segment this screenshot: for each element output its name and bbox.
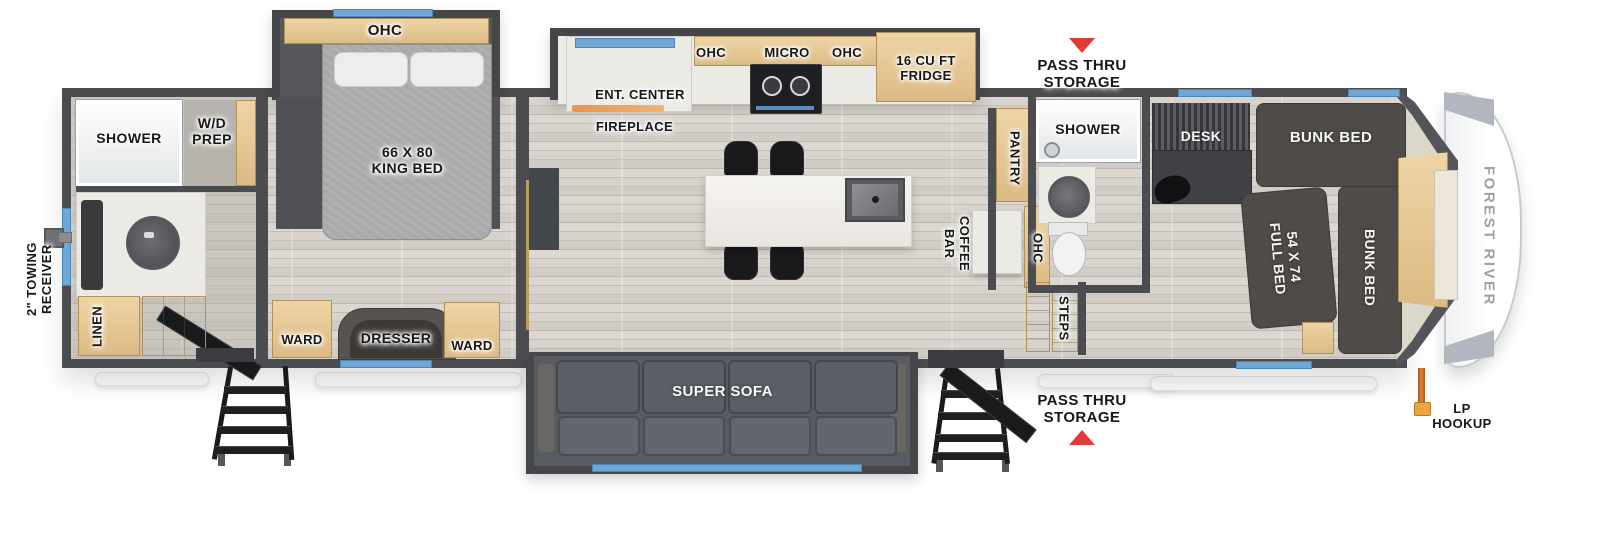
steps-right-foot-a xyxy=(936,458,943,472)
front-wardrobe-door xyxy=(1434,170,1458,300)
wall-bath-bedroom xyxy=(256,97,268,359)
sofa-seat-cushion-3 xyxy=(729,416,811,456)
mid-shower-head xyxy=(1044,142,1060,158)
desk-label: DESK xyxy=(1152,126,1250,146)
ward-right-label: WARD xyxy=(442,336,502,356)
steps-right-tread-4 xyxy=(933,452,1009,460)
steps-left-tread-4 xyxy=(215,446,292,454)
vanity-faucet xyxy=(144,232,154,238)
king-pillow-right xyxy=(410,52,484,87)
bumper-left-2 xyxy=(315,372,522,387)
sofa-back-cushion-1 xyxy=(556,360,640,414)
galley-ohc-label: OHC xyxy=(1025,216,1049,280)
island-faucet xyxy=(872,196,879,203)
sofa-seat-cushion-4 xyxy=(815,416,897,456)
bath-lower-cabinets xyxy=(142,296,206,356)
bunk-bed-right-label: BUNK BED xyxy=(1352,198,1388,338)
window-bunk-bottom xyxy=(1236,361,1312,369)
sofa-seat-cushion-2 xyxy=(643,416,725,456)
steps-left-foot-a xyxy=(218,452,225,466)
bumper-left-1 xyxy=(95,372,209,386)
wall-kitchen-pantry xyxy=(988,108,996,290)
bedroom-closet xyxy=(529,168,559,250)
fireplace-label: FIREPLACE xyxy=(572,118,697,136)
vanity-sink xyxy=(126,216,180,270)
window-bunk-top-2 xyxy=(1348,89,1400,97)
bunk-bed-top-label: BUNK BED xyxy=(1260,128,1402,148)
rv-floorplan: FOREST RIVER OHC 66 X 80 KING BED ENT. C… xyxy=(0,0,1600,543)
king-pillow-left xyxy=(334,52,408,87)
pass-thru-top-marker xyxy=(1069,38,1095,53)
vanity-mirror xyxy=(81,200,103,290)
steps-left-tread-2 xyxy=(221,406,288,414)
sofa-seat-cushion-1 xyxy=(558,416,640,456)
king-ohc-label: OHC xyxy=(330,19,440,43)
kitchen-micro-label: MICRO xyxy=(752,44,822,62)
sofa-slide-window xyxy=(592,464,862,472)
window-bedroom-bottom xyxy=(340,360,432,368)
ent-center-window xyxy=(575,38,675,48)
wall-midbath-right xyxy=(1142,97,1150,293)
linen-label: LINEN xyxy=(86,300,110,354)
pass-thru-top-label: PASS THRU STORAGE xyxy=(1012,55,1152,93)
steps-label: STEPS xyxy=(1050,288,1076,348)
pantry-label: PANTRY xyxy=(1002,116,1026,200)
dresser-label: DRESSER xyxy=(338,328,454,348)
fridge-label: 16 CU FT FRIDGE xyxy=(878,50,974,88)
towing-receiver-label: 2" TOWING RECEIVER xyxy=(20,218,60,340)
coffee-bar-label: COFFEE BAR xyxy=(938,212,974,276)
midbath-sink xyxy=(1048,176,1090,218)
king-slide-return-right xyxy=(492,97,500,229)
entry-threshold-right xyxy=(928,350,1004,368)
rear-shower-label: SHOWER xyxy=(78,128,180,148)
pass-thru-bottom-marker xyxy=(1069,430,1095,445)
steps-left-tread-1 xyxy=(224,386,286,394)
coffee-bar-table xyxy=(972,210,1022,274)
fireplace-strip xyxy=(572,105,664,112)
closet-door-track xyxy=(526,180,529,330)
king-slide-window xyxy=(333,9,433,17)
brand-logo: FOREST RIVER xyxy=(1476,150,1502,322)
bumper-right-2 xyxy=(1150,376,1377,391)
stove-burner-right xyxy=(790,76,810,96)
rear-entry-threshold xyxy=(196,348,254,362)
lp-hookup-label: LP HOOKUP xyxy=(1424,398,1500,436)
king-bed-label: 66 X 80 KING BED xyxy=(330,140,485,180)
ward-left-label: WARD xyxy=(272,330,332,350)
sofa-back-cushion-4 xyxy=(814,360,898,414)
rear-bath-inner-wall xyxy=(76,186,256,192)
full-bed-foot-cabinet xyxy=(1302,322,1334,354)
pass-thru-bottom-label: PASS THRU STORAGE xyxy=(1012,390,1152,428)
stove-burner-left xyxy=(762,76,782,96)
king-slide-return-left xyxy=(276,97,322,229)
kitchen-ohc-left-label: OHC xyxy=(684,44,738,62)
stove-front-glow xyxy=(756,106,814,110)
super-sofa-label: SUPER SOFA xyxy=(640,382,805,402)
mid-shower-label: SHOWER xyxy=(1038,120,1138,138)
wall-midbath-bottom xyxy=(1028,285,1150,293)
wd-prep-label: W/D PREP xyxy=(184,112,240,150)
kitchen-ohc-right-label: OHC xyxy=(820,44,874,62)
sofa-armrest-left xyxy=(538,364,554,452)
ent-center-label: ENT. CENTER xyxy=(575,86,705,104)
hitch-receiver-bar xyxy=(58,232,72,243)
midbath-toilet xyxy=(1052,232,1086,276)
steps-right-tread-3 xyxy=(935,434,1007,442)
steps-left-tread-3 xyxy=(218,426,290,434)
window-bunk-top-1 xyxy=(1178,89,1252,97)
